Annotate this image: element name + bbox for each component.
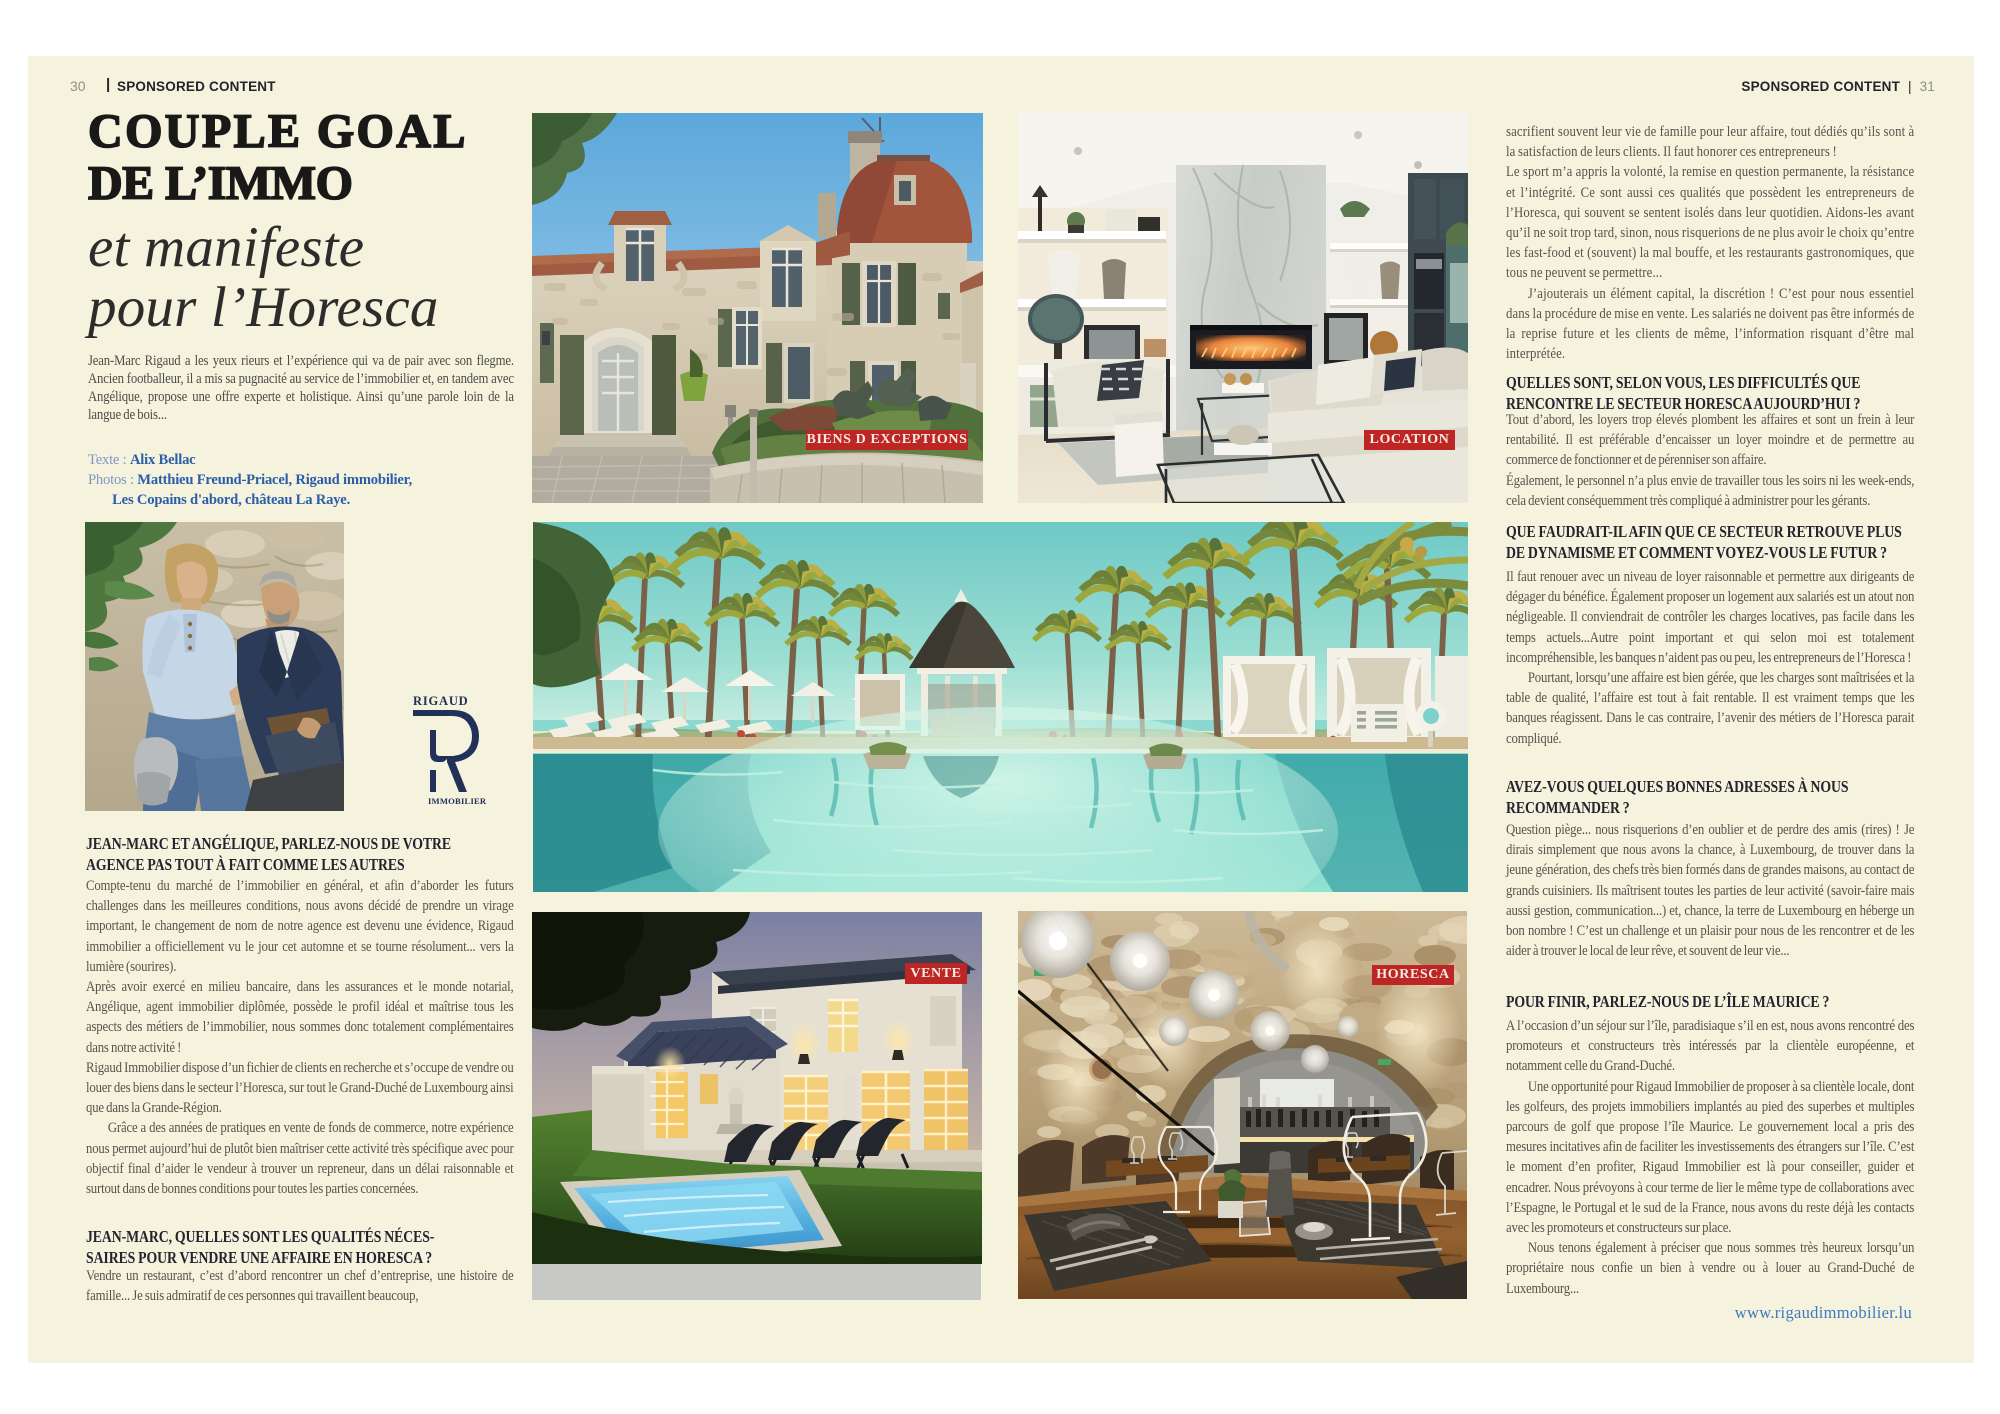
svg-text:IMMOBILIER: IMMOBILIER [428, 796, 487, 806]
svg-text:RIGAUD: RIGAUD [413, 694, 469, 708]
